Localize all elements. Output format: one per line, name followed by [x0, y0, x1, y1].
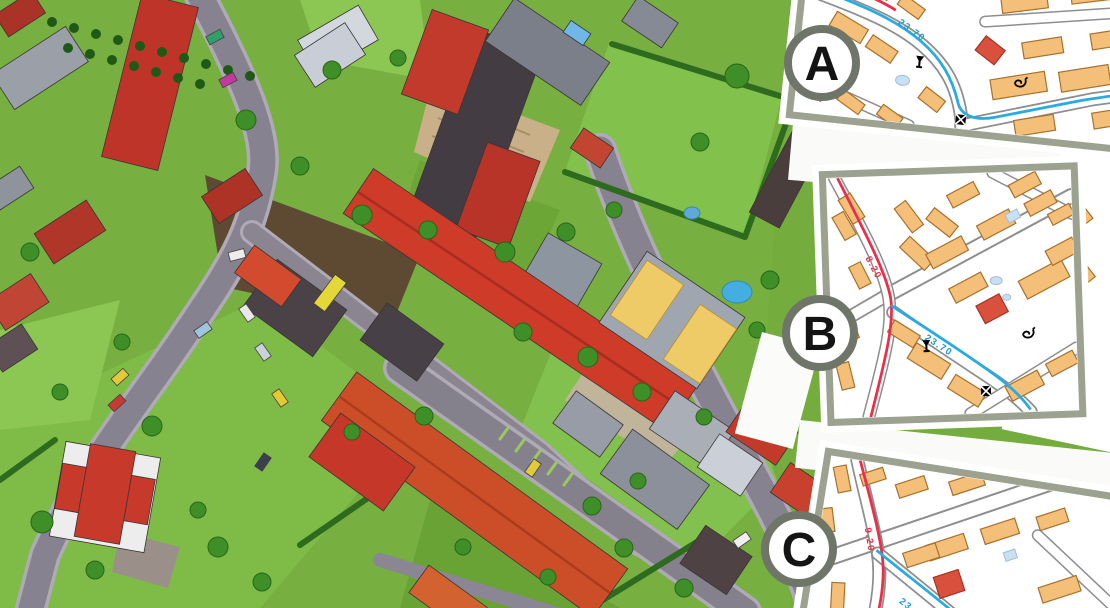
- badge-b-letter: B: [803, 308, 838, 361]
- badge-c-letter: C: [782, 524, 817, 577]
- badge-b[interactable]: B: [786, 299, 854, 367]
- badge-a[interactable]: A: [788, 29, 856, 97]
- pond: [1003, 294, 1011, 300]
- badge-a-letter: A: [805, 38, 840, 91]
- crossed-square-icon: [981, 386, 991, 396]
- map-card-b: 8.20 23.70: [812, 156, 1093, 433]
- badge-c[interactable]: C: [765, 515, 833, 583]
- map-matching-exercise: 9.20 23.70: [0, 0, 1110, 608]
- pond: [990, 276, 1002, 284]
- map-cards-overlay: 9.20 23.70: [0, 0, 1110, 608]
- crossed-square-icon: [955, 114, 966, 125]
